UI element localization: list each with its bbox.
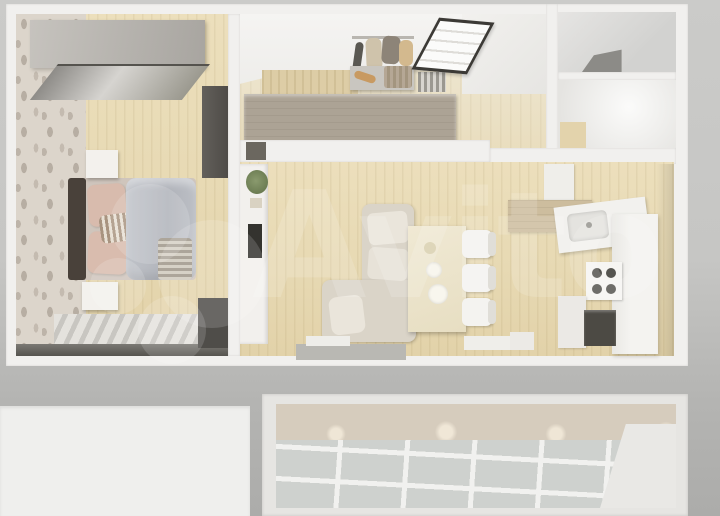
nightstand-top: [86, 150, 118, 178]
bedroom-wardrobe: [30, 20, 205, 68]
wall-hall-living: [240, 140, 490, 162]
hallway-wood-wall: [262, 70, 358, 96]
hanging-coat-gray: [381, 35, 401, 64]
balcony-door-mat-1: [306, 336, 350, 346]
living-rug-gray: [296, 344, 406, 360]
watermark-logo-circle-3: [90, 258, 146, 314]
bedroom-dark-cabinet: [202, 86, 228, 178]
watermark-logo-circle-4: [138, 296, 206, 364]
balcony-door-mat-2: [464, 336, 510, 350]
wardrobe-mirror-door: [30, 64, 210, 100]
doormat-striped: [418, 72, 446, 92]
bathroom-wood-corner: [560, 122, 586, 148]
wall-hall-bath: [546, 4, 558, 162]
hallway-wardrobe: [244, 94, 456, 142]
wall-bath-divider: [558, 72, 676, 80]
kitchen-mat: [510, 332, 534, 350]
white-panel: [0, 406, 250, 516]
storage-basket: [384, 66, 412, 88]
bed-headboard: [68, 178, 86, 280]
floorplan-render: Avito: [0, 0, 720, 516]
doorway-living: [246, 142, 266, 160]
watermark-brand-text: Avito: [252, 172, 661, 320]
hanging-coat-tan: [399, 40, 413, 66]
